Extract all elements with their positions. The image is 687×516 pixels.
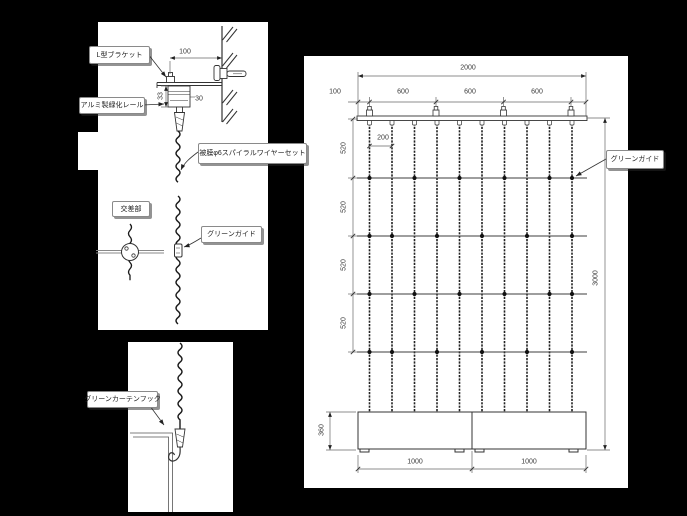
crossing-label-text: 交差部 <box>121 206 142 213</box>
planters <box>358 412 586 452</box>
top-rail <box>357 116 587 121</box>
green-guide-label-elevation: グリーンガイド <box>606 150 664 169</box>
dim-bracket-pitch-2: 600 <box>464 89 476 96</box>
dim-bracket-pitch-1: 600 <box>397 89 409 96</box>
spiral-wire-label-text: 被膜φ6スパイラルワイヤーセット <box>199 150 305 157</box>
curtain-hook-label-text: グリーンカーテンフック <box>84 396 160 403</box>
curtain-hook-label: グリーンカーテンフック <box>87 391 158 408</box>
green-guide-label-detail-text: グリーンガイド <box>207 231 256 238</box>
l-bracket-label-text: L型ブラケット <box>97 52 143 59</box>
dim-row-pitch-2: 520 <box>341 201 348 213</box>
dim-row-pitch-4: 520 <box>341 317 348 329</box>
dim-row-pitch-3: 520 <box>341 259 348 271</box>
dim-rail-width: 30 <box>195 96 203 103</box>
alumi-rail-label: アルミ製緑化レール <box>79 97 145 114</box>
dim-planter-width-2: 1000 <box>521 459 537 466</box>
dim-row-pitch-1: 520 <box>341 142 348 154</box>
l-bracket-label: L型ブラケット <box>89 46 150 64</box>
crossing-label: 交差部 <box>112 201 150 217</box>
drawing-canvas: L型ブラケット アルミ製緑化レール 被膜φ6スパイラルワイヤーセット 交差部 グ… <box>0 0 687 516</box>
dim-end-offset: 100 <box>329 89 341 96</box>
green-guide-label-detail: グリーンガイド <box>201 226 262 243</box>
alumi-rail-label-text: アルミ製緑化レール <box>81 102 144 109</box>
dim-overall-height: 3000 <box>593 270 600 286</box>
dim-planter-width-1: 1000 <box>407 459 423 466</box>
dim-planter-height: 360 <box>319 424 326 436</box>
green-guide-clip <box>175 244 183 257</box>
dim-bracket-depth: 100 <box>179 49 191 56</box>
dim-wire-pitch: 200 <box>377 135 389 142</box>
dim-rail-height: 33 <box>158 92 165 100</box>
dim-bracket-pitch-3: 600 <box>531 89 543 96</box>
dim-overall-width: 2000 <box>460 65 476 72</box>
spiral-wire-label: 被膜φ6スパイラルワイヤーセット <box>198 143 307 164</box>
green-guide-label-elevation-text: グリーンガイド <box>611 156 660 163</box>
